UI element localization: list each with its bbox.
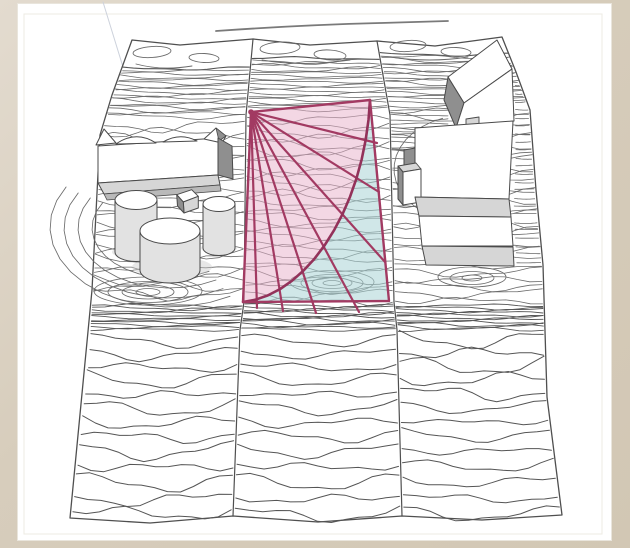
site-model-canvas[interactable]: [0, 0, 630, 548]
page-frame: { "scene": { "kind": "3d-site-contour-mo…: [0, 0, 630, 548]
road-edge-line: [216, 21, 448, 31]
